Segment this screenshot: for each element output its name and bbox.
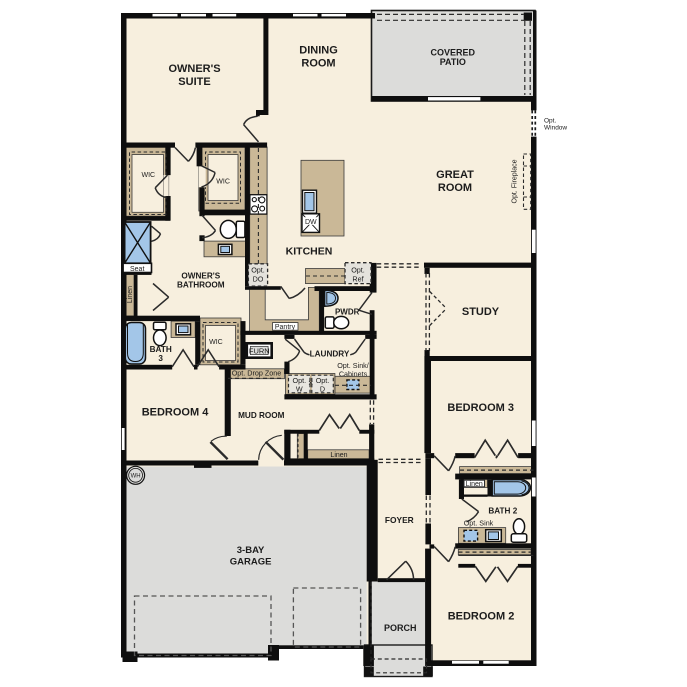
- svg-text:PATIO: PATIO: [440, 57, 466, 67]
- svg-text:DW: DW: [305, 219, 317, 226]
- svg-text:ROOM: ROOM: [301, 58, 335, 70]
- svg-text:D: D: [320, 385, 325, 394]
- svg-text:OWNER'S: OWNER'S: [168, 63, 220, 75]
- svg-text:SUITE: SUITE: [178, 76, 210, 88]
- svg-text:Opt. Drop Zone: Opt. Drop Zone: [232, 368, 282, 377]
- svg-text:ROOM: ROOM: [438, 182, 472, 194]
- svg-text:PWDR: PWDR: [335, 307, 360, 316]
- svg-text:LAUNDRY: LAUNDRY: [310, 349, 350, 358]
- svg-text:Linen: Linen: [330, 452, 347, 459]
- svg-text:Linen: Linen: [127, 286, 134, 303]
- svg-text:DINING: DINING: [299, 45, 338, 57]
- svg-text:BEDROOM 4: BEDROOM 4: [142, 407, 210, 419]
- svg-text:KITCHEN: KITCHEN: [286, 245, 333, 257]
- svg-text:BATHROOM: BATHROOM: [177, 281, 225, 290]
- svg-text:Opt.: Opt.: [351, 266, 365, 275]
- svg-text:MUD ROOM: MUD ROOM: [238, 411, 285, 420]
- svg-text:Window: Window: [544, 125, 567, 132]
- svg-text:Opt. Fireplace: Opt. Fireplace: [512, 159, 519, 203]
- svg-text:Opt. Sink: Opt. Sink: [464, 519, 494, 528]
- svg-text:3-BAY: 3-BAY: [237, 545, 265, 556]
- svg-text:GARAGE: GARAGE: [230, 557, 272, 568]
- svg-text:WH: WH: [131, 474, 141, 480]
- svg-text:WIC: WIC: [209, 339, 223, 346]
- svg-text:3: 3: [158, 354, 163, 363]
- svg-text:Seat: Seat: [130, 266, 144, 273]
- svg-text:FOYER: FOYER: [385, 515, 414, 525]
- svg-text:Ref: Ref: [352, 274, 363, 283]
- svg-text:BEDROOM 3: BEDROOM 3: [447, 402, 514, 414]
- svg-text:Pantry: Pantry: [275, 324, 296, 331]
- svg-text:STUDY: STUDY: [462, 306, 500, 318]
- svg-text:FURN: FURN: [249, 346, 270, 355]
- svg-text:BEDROOM 2: BEDROOM 2: [448, 610, 515, 622]
- svg-text:WIC: WIC: [216, 179, 230, 186]
- svg-text:DO: DO: [253, 274, 264, 283]
- svg-text:W: W: [296, 385, 303, 394]
- svg-text:BATH: BATH: [150, 345, 172, 354]
- svg-text:PORCH: PORCH: [384, 623, 417, 633]
- svg-text:GREAT: GREAT: [436, 169, 474, 181]
- svg-text:Opt.: Opt.: [251, 266, 265, 275]
- svg-text:Linen: Linen: [466, 481, 483, 488]
- svg-text:OWNER'S: OWNER'S: [181, 271, 220, 280]
- svg-text:Cabinets: Cabinets: [339, 369, 368, 378]
- svg-text:Opt.: Opt.: [544, 117, 556, 124]
- svg-text:WIC: WIC: [141, 172, 155, 179]
- svg-text:BATH 2: BATH 2: [488, 507, 517, 516]
